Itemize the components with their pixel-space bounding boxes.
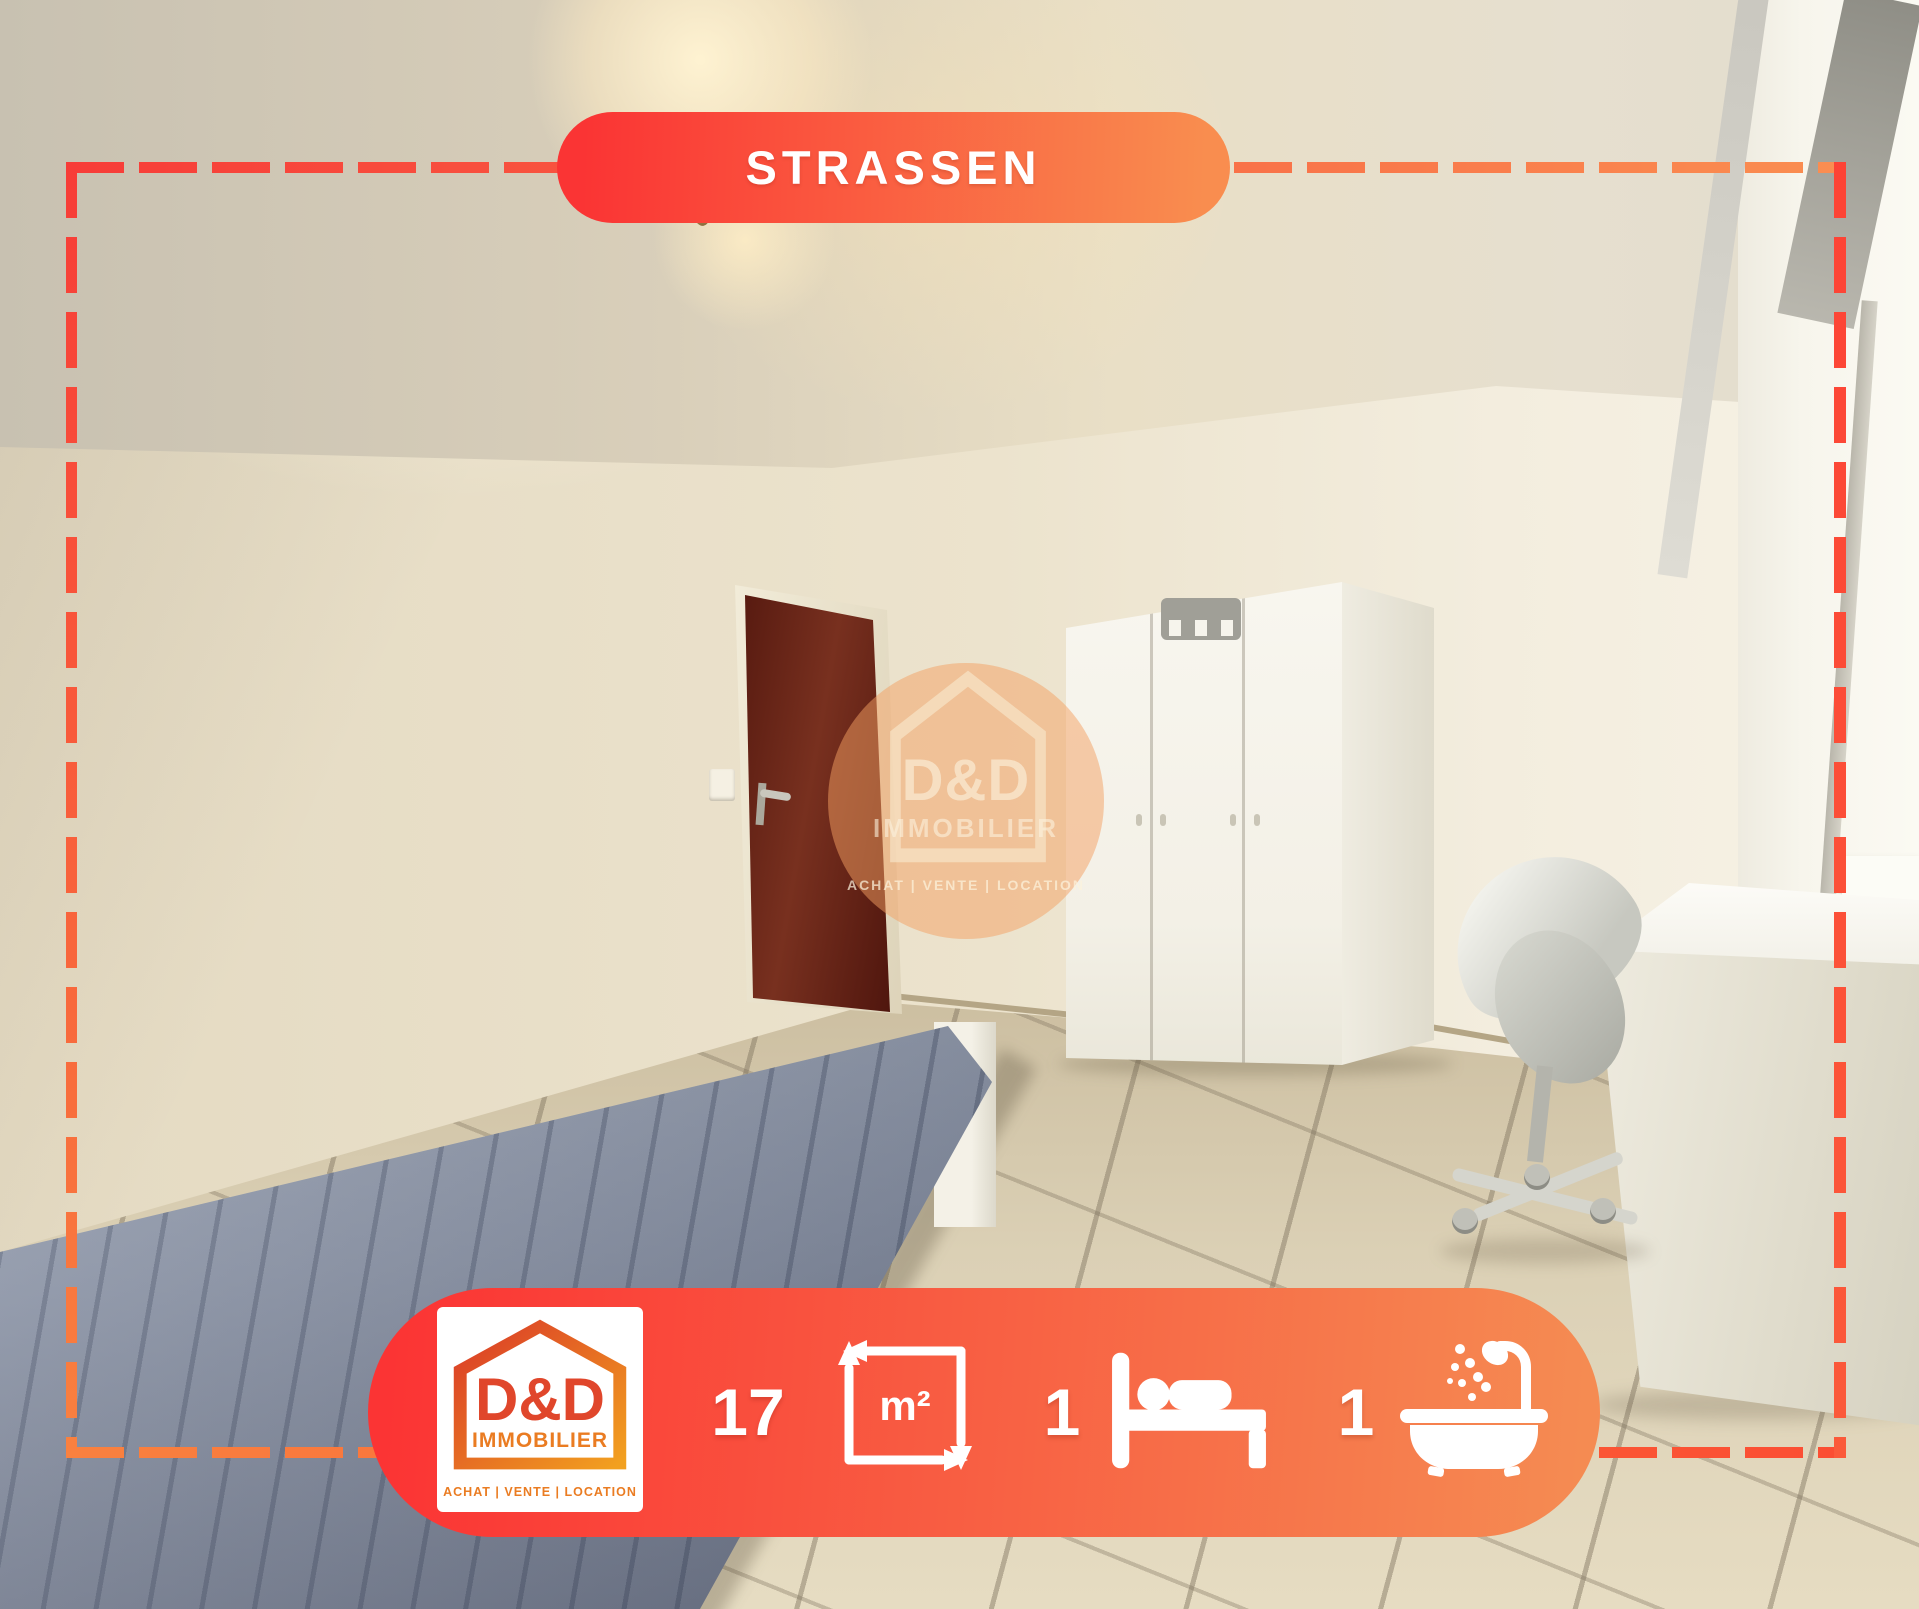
watermark: D&D IMMOBILIER ACHAT | VENTE | LOCATION bbox=[828, 663, 1104, 939]
wardrobe-knob bbox=[1230, 814, 1236, 826]
agency-brand-sub: IMMOBILIER bbox=[437, 1429, 643, 1453]
agency-brand: D&D bbox=[437, 1365, 643, 1434]
listing-card: D&D IMMOBILIER ACHAT | VENTE | LOCATION … bbox=[0, 0, 1919, 1609]
bed-icon bbox=[1108, 1348, 1270, 1473]
chair-shadow bbox=[1440, 1238, 1650, 1264]
wardrobe-knob bbox=[1160, 814, 1166, 826]
chair-caster bbox=[1452, 1208, 1478, 1234]
agency-logo: D&D IMMOBILIER ACHAT | VENTE | LOCATION bbox=[437, 1307, 643, 1512]
wardrobe-door-seam bbox=[1150, 582, 1153, 1067]
watermark-tagline: ACHAT | VENTE | LOCATION bbox=[788, 877, 1144, 893]
wardrobe-knob bbox=[1136, 814, 1142, 826]
wardrobe bbox=[1066, 582, 1342, 1067]
area-measure-icon: m² bbox=[840, 1338, 970, 1473]
location-banner: STRASSEN bbox=[557, 112, 1230, 223]
dashed-frame-left bbox=[66, 162, 77, 1458]
bathrooms-value: 1 bbox=[1330, 1288, 1382, 1537]
agency-tagline: ACHAT | VENTE | LOCATION bbox=[437, 1485, 643, 1499]
bathtub-shower-icon bbox=[1398, 1323, 1550, 1475]
wardrobe-door-seam bbox=[1242, 582, 1245, 1067]
wardrobe-side-panel bbox=[1342, 582, 1434, 1067]
bedrooms-value: 1 bbox=[1036, 1288, 1088, 1537]
wardrobe-knob bbox=[1254, 814, 1260, 826]
hanger-rack bbox=[1161, 598, 1241, 640]
property-info-bar: D&D IMMOBILIER ACHAT | VENTE | LOCATION … bbox=[368, 1288, 1600, 1537]
chair-caster bbox=[1524, 1164, 1550, 1190]
dashed-frame-right bbox=[1834, 162, 1846, 1458]
svg-text:m²: m² bbox=[879, 1382, 930, 1429]
location-title: STRASSEN bbox=[746, 140, 1042, 195]
watermark-brand-sub: IMMOBILIER bbox=[828, 813, 1104, 844]
watermark-brand: D&D bbox=[828, 747, 1104, 814]
chair-caster bbox=[1590, 1198, 1616, 1224]
area-value: 17 bbox=[704, 1288, 792, 1537]
desk-side-panel bbox=[1595, 950, 1919, 1430]
hanger-hooks bbox=[1169, 620, 1233, 636]
light-switch bbox=[709, 769, 735, 801]
